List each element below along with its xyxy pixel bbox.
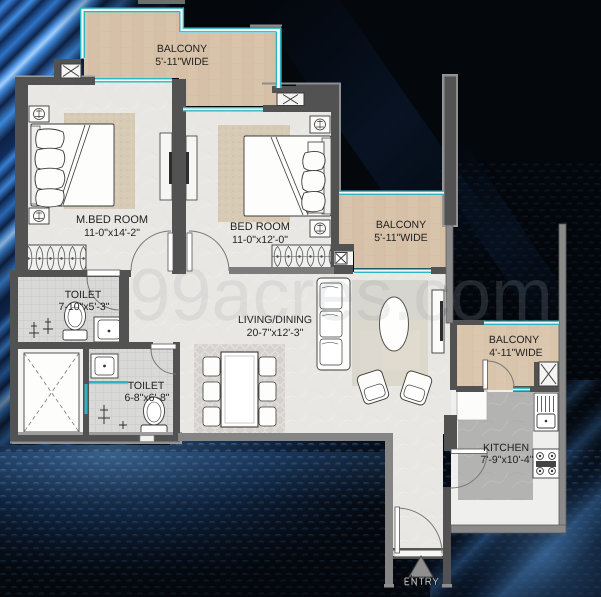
svg-text:M.BED ROOM: M.BED ROOM — [76, 214, 148, 226]
svg-text:7-10"x5'-3": 7-10"x5'-3" — [59, 301, 110, 313]
svg-text:KITCHEN: KITCHEN — [483, 442, 529, 454]
svg-text:BED ROOM: BED ROOM — [230, 221, 290, 233]
svg-text:11-0"x12'-0": 11-0"x12'-0" — [232, 234, 288, 246]
svg-text:6-8"x6'-8": 6-8"x6'-8" — [124, 392, 169, 404]
svg-text:BALCONY: BALCONY — [157, 43, 207, 55]
svg-text:5'-11"WIDE: 5'-11"WIDE — [374, 232, 427, 244]
svg-text:TOILET: TOILET — [128, 380, 165, 392]
svg-text:TOILET: TOILET — [65, 289, 102, 301]
svg-text:11-0"x14'-2": 11-0"x14'-2" — [84, 227, 140, 239]
svg-text:4'-11"WIDE: 4'-11"WIDE — [489, 347, 542, 359]
svg-text:7'-9"x10'-4": 7'-9"x10'-4" — [481, 454, 534, 466]
svg-text:5'-11"WIDE: 5'-11"WIDE — [155, 56, 208, 68]
svg-text:BALCONY: BALCONY — [376, 219, 426, 231]
